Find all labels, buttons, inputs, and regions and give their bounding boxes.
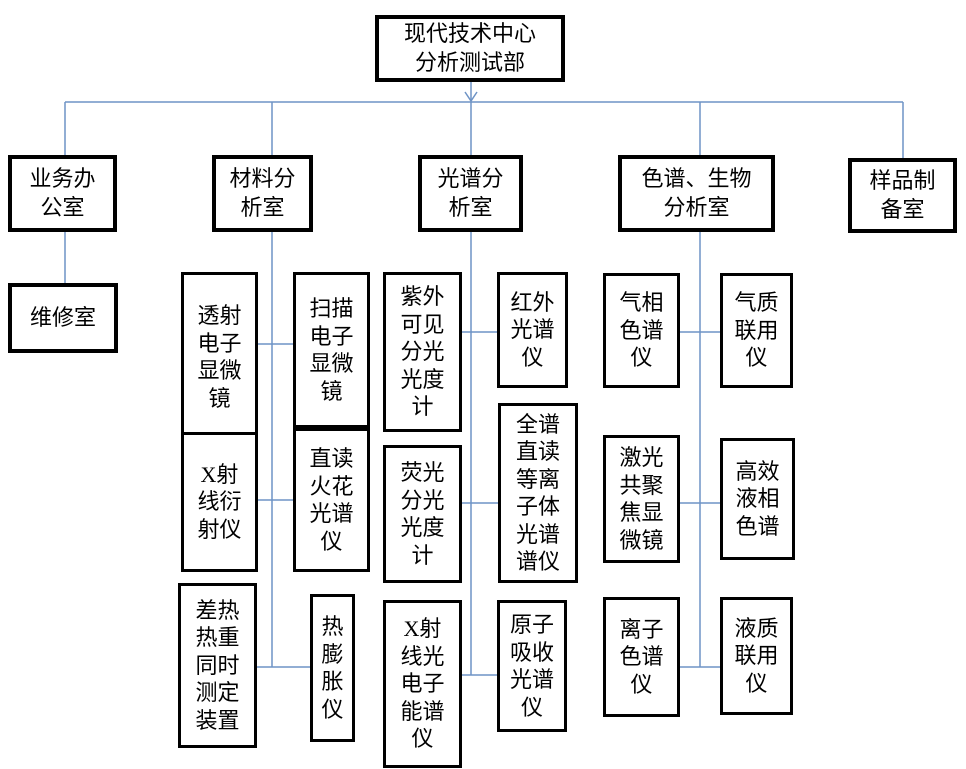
instrument-box-xrd: X射 线衍 射仪 xyxy=(181,432,258,572)
instrument-box-confocal: 激光 共聚 焦显 微镜 xyxy=(603,435,680,563)
unit-box-maintenance-room: 维修室 xyxy=(8,283,118,353)
instrument-box-lc-ms: 液质 联用 仪 xyxy=(720,597,793,715)
instrument-box-ftir: 红外 光谱 仪 xyxy=(497,272,568,388)
instrument-box-sem: 扫描 电子 显微 镜 xyxy=(293,272,370,428)
instrument-box-tg-dta: 差热 热重 同时 测定 装置 xyxy=(178,583,257,748)
org-chart: 现代技术中心 分析测试部 业务办 公室 材料分 析室 光谱分 析室 色谱、生物 … xyxy=(0,0,966,769)
instrument-box-uv-vis: 紫外 可见 分光 光度 计 xyxy=(383,272,462,432)
org-root-box: 现代技术中心 分析测试部 xyxy=(375,15,565,82)
dept-box-chromatography-biology: 色谱、生物 分析室 xyxy=(618,155,775,232)
instrument-box-icp-oes: 全谱 直读 等离 子体 光谱 谱仪 xyxy=(498,403,578,583)
instrument-box-fluorescence: 荧光 分光 光度 计 xyxy=(383,445,462,583)
instrument-box-spark-oes: 直读 火花 光谱 仪 xyxy=(293,428,370,572)
dept-box-material-analysis: 材料分 析室 xyxy=(212,155,313,232)
dept-box-business-office: 业务办 公室 xyxy=(8,155,117,232)
instrument-box-ic: 离子 色谱 仪 xyxy=(603,597,680,717)
connector-lines xyxy=(0,0,966,769)
instrument-box-aas: 原子 吸收 光谱 仪 xyxy=(497,600,567,732)
dept-box-sample-preparation: 样品制 备室 xyxy=(848,158,957,233)
instrument-box-dilatometer: 热 膨 胀 仪 xyxy=(310,594,355,742)
dept-box-spectral-analysis: 光谱分 析室 xyxy=(418,155,523,232)
instrument-box-tem: 透射 电子 显微 镜 xyxy=(181,272,258,442)
instrument-box-gc: 气相 色谱 仪 xyxy=(603,273,680,388)
instrument-box-hplc: 高效 液相 色谱 xyxy=(720,438,795,560)
instrument-box-gc-ms: 气质 联用 仪 xyxy=(720,273,793,388)
instrument-box-xps: X射 线光 电子 能谱 仪 xyxy=(383,600,462,768)
